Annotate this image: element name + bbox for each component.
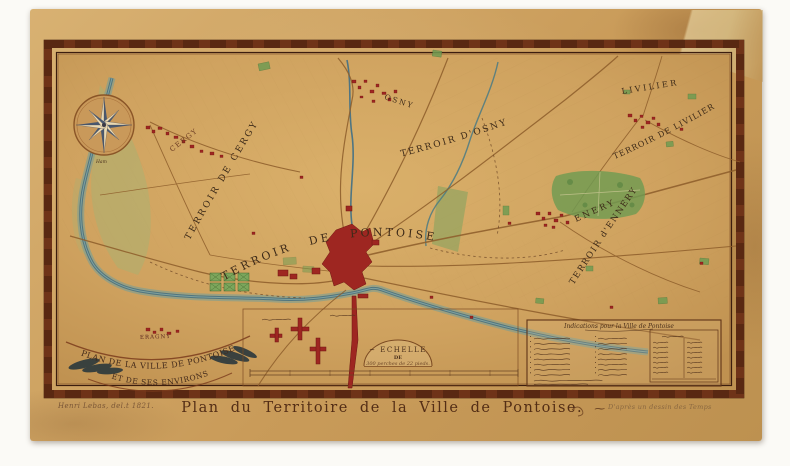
map-title-flourish: ⁓ — [594, 402, 607, 415]
label-village-eragny: ERAGNY — [140, 334, 171, 341]
map-artwork: TERROIR DE CERGY TERROIR DE PONTOISE TER… — [0, 0, 790, 466]
attribution-note: D'après un dessin des Temps — [608, 403, 712, 411]
legend-header: Indications pour la Ville de Pontoise — [563, 323, 674, 330]
label-hamlet-ham: Ham — [95, 159, 107, 165]
scale-title: ~ ECHELLE — [369, 346, 427, 354]
map-title-text: Plan du Territoire de la Ville de Pontoi… — [181, 400, 583, 416]
artist-signature: Henri Lebas, del.t 1821. — [58, 402, 154, 410]
legend-table: Indications pour la Ville de Pontoise — [527, 320, 721, 386]
photographed-antique-map: TERROIR DE CERGY TERROIR DE PONTOISE TER… — [0, 0, 790, 466]
scale-measure: 300 perches de 22 pieds. — [366, 361, 430, 367]
compass-rose-icon — [74, 95, 134, 155]
